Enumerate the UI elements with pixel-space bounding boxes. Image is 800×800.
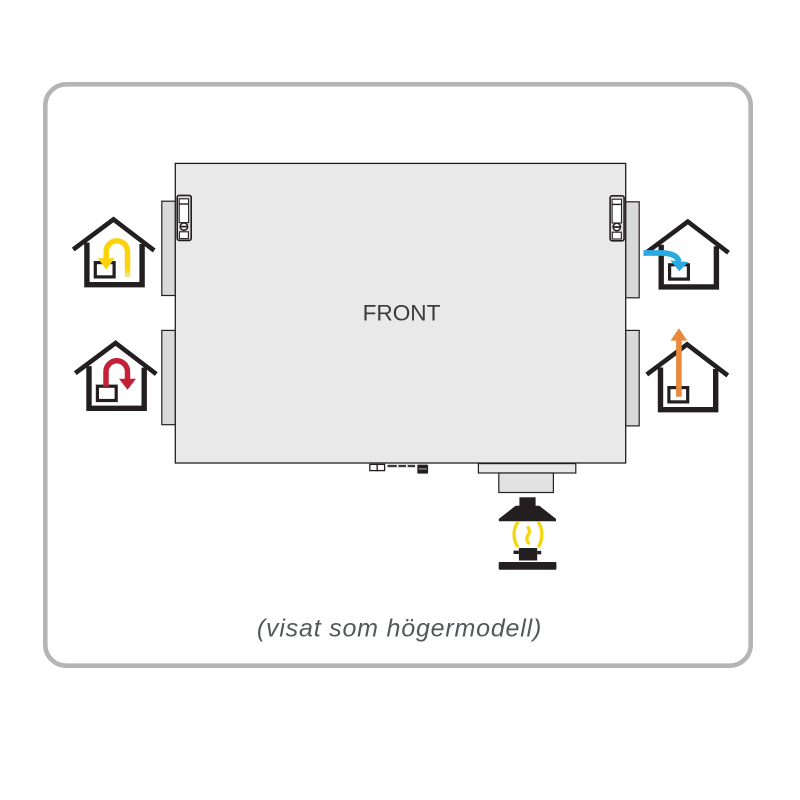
svg-text:FRONT: FRONT xyxy=(363,301,441,326)
svg-text:(visat som högermodell): (visat som högermodell) xyxy=(257,615,542,643)
